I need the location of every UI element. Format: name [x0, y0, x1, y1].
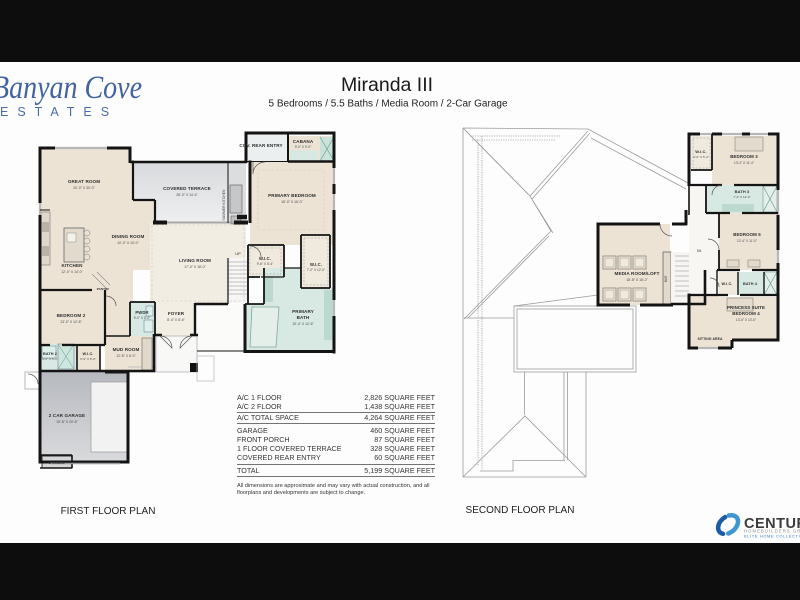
svg-text:PWDR: PWDR — [135, 310, 148, 315]
svg-text:FOYER: FOYER — [168, 311, 185, 316]
svg-text:MEDIA ROOM/LOFT: MEDIA ROOM/LOFT — [615, 271, 660, 276]
svg-text:W.I.C.: W.I.C. — [722, 282, 733, 286]
svg-text:20'-0" X 30'-0": 20'-0" X 30'-0" — [73, 186, 95, 190]
svg-text:4,264 SQUARE FEET: 4,264 SQUARE FEET — [364, 413, 435, 422]
svg-text:6'-9" X 5'-0": 6'-9" X 5'-0" — [80, 357, 96, 361]
svg-text:MUD ROOM: MUD ROOM — [113, 347, 140, 352]
svg-text:COVERED TERRACE: COVERED TERRACE — [163, 186, 211, 191]
svg-text:PANTRY: PANTRY — [97, 287, 110, 291]
svg-text:A/C 1 FLOOR: A/C 1 FLOOR — [237, 393, 282, 402]
svg-text:8'-4" X 8'-6": 8'-4" X 8'-6" — [167, 318, 185, 322]
svg-text:17'-0" X 18'-0": 17'-0" X 18'-0" — [184, 265, 206, 269]
svg-text:LIVING ROOM: LIVING ROOM — [179, 258, 211, 263]
svg-text:SECOND FLOOR PLAN: SECOND FLOOR PLAN — [466, 505, 575, 516]
svg-text:SITTING AREA: SITTING AREA — [698, 337, 723, 341]
svg-text:STORAGE: STORAGE — [49, 461, 64, 465]
svg-text:GREAT ROOM: GREAT ROOM — [68, 179, 100, 184]
svg-text:COVERED REAR ENTRY: COVERED REAR ENTRY — [237, 453, 321, 462]
svg-text:BATH 3: BATH 3 — [735, 189, 750, 194]
svg-text:10'-0" X 10'-0": 10'-0" X 10'-0" — [117, 241, 139, 245]
svg-text:A/C TOTAL SPACE: A/C TOTAL SPACE — [237, 413, 299, 422]
svg-text:W.I.C.: W.I.C. — [83, 352, 94, 356]
svg-text:W.I.C.: W.I.C. — [259, 256, 271, 261]
svg-text:PRIMARY: PRIMARY — [292, 309, 314, 314]
svg-text:1 FLOOR COVERED TERRACE: 1 FLOOR COVERED TERRACE — [237, 444, 342, 453]
svg-text:BEDROOM 5: BEDROOM 5 — [733, 232, 761, 237]
svg-text:BEDROOM 2: BEDROOM 2 — [57, 313, 86, 318]
svg-text:All dimensions are approximate: All dimensions are approximate and may v… — [237, 483, 429, 489]
svg-text:19'-8" X 20'-8": 19'-8" X 20'-8" — [56, 420, 78, 424]
svg-text:328 SQUARE FEET: 328 SQUARE FEET — [370, 444, 435, 453]
svg-text:FRONT PORCH: FRONT PORCH — [237, 435, 290, 444]
svg-text:A/C 2 FLOOR: A/C 2 FLOOR — [237, 402, 282, 411]
svg-text:BATH 2: BATH 2 — [43, 352, 57, 356]
svg-text:12'-8" X 6'-0": 12'-8" X 6'-0" — [116, 354, 136, 358]
svg-text:5'-0" X 5'-0": 5'-0" X 5'-0" — [134, 316, 151, 320]
svg-text:DINING ROOM: DINING ROOM — [112, 234, 145, 239]
svg-text:28'-0" X 14'-4": 28'-0" X 14'-4" — [176, 193, 198, 197]
svg-text:CABANA: CABANA — [293, 139, 314, 144]
svg-text:87 SQUARE FEET: 87 SQUARE FEET — [374, 435, 435, 444]
svg-text:13'-6" X 13'-0": 13'-6" X 13'-0" — [736, 318, 756, 322]
svg-text:18'-8" X 18'-2": 18'-8" X 18'-2" — [626, 278, 648, 282]
svg-text:SUMMER KITCHEN: SUMMER KITCHEN — [222, 189, 226, 220]
svg-text:2 CAR GARAGE: 2 CAR GARAGE — [49, 413, 85, 418]
svg-text:TOTAL: TOTAL — [237, 466, 260, 475]
svg-text:W.I.C.: W.I.C. — [310, 262, 322, 267]
svg-text:9'-0" X 9'-0": 9'-0" X 9'-0" — [295, 145, 312, 149]
svg-text:5 Bedrooms / 5.5 Baths / Media: 5 Bedrooms / 5.5 Baths / Media Room / 2-… — [269, 99, 508, 110]
svg-text:13'-4" X 11'-4": 13'-4" X 11'-4" — [734, 161, 754, 165]
svg-text:19'-4" X 12'-6": 19'-4" X 12'-6" — [292, 322, 314, 326]
svg-text:60 SQUARE FEET: 60 SQUARE FEET — [374, 453, 435, 462]
svg-text:COV. REAR ENTRY: COV. REAR ENTRY — [239, 143, 282, 148]
svg-text:GARAGE: GARAGE — [237, 426, 268, 435]
svg-text:BATH 4: BATH 4 — [743, 282, 758, 286]
svg-text:W.I.C.: W.I.C. — [695, 149, 707, 154]
svg-text:12'-0" X 14'-0": 12'-0" X 14'-0" — [61, 270, 83, 274]
svg-text:Banyan Cove: Banyan Cove — [0, 70, 142, 106]
svg-text:BEDROOM 3: BEDROOM 3 — [730, 154, 758, 159]
svg-text:PRIMARY BEDROOM: PRIMARY BEDROOM — [268, 193, 316, 198]
svg-text:BAR: BAR — [664, 275, 668, 282]
svg-text:7'-4" X 12'-0": 7'-4" X 12'-0" — [733, 195, 750, 199]
svg-text:1,438 SQUARE FEET: 1,438 SQUARE FEET — [364, 402, 435, 411]
svg-text:16'-0" X 16'-0": 16'-0" X 16'-0" — [281, 200, 303, 204]
svg-text:9'-6" X 5'-4": 9'-6" X 5'-4" — [257, 262, 274, 266]
svg-text:ELITE HOME COLLECTIO: ELITE HOME COLLECTIO — [744, 534, 800, 539]
svg-text:KITCHEN: KITCHEN — [61, 263, 83, 268]
svg-text:13'-0" X 12'-8": 13'-0" X 12'-8" — [60, 320, 82, 324]
svg-text:BATH: BATH — [297, 315, 310, 320]
svg-text:floorplans and developments ar: floorplans and developments are subject … — [237, 490, 366, 496]
svg-text:460 SQUARE FEET: 460 SQUARE FEET — [370, 426, 435, 435]
svg-text:5,199 SQUARE FEET: 5,199 SQUARE FEET — [364, 466, 435, 475]
svg-text:Miranda III: Miranda III — [341, 74, 433, 96]
svg-text:2,826 SQUARE FEET: 2,826 SQUARE FEET — [364, 393, 435, 402]
svg-text:BEDROOM 4: BEDROOM 4 — [732, 311, 760, 316]
svg-text:12'-4" X 11'-0": 12'-4" X 11'-0" — [737, 239, 757, 243]
svg-text:UP: UP — [235, 251, 241, 256]
svg-text:9'-2" X 5'-1": 9'-2" X 5'-1" — [42, 357, 58, 361]
svg-text:7'-2" X 12'-0": 7'-2" X 12'-0" — [307, 268, 325, 272]
svg-text:ESTATES: ESTATES — [0, 105, 118, 119]
svg-text:FIRST FLOOR PLAN: FIRST FLOOR PLAN — [61, 506, 156, 517]
svg-text:PRINCESS SUITE: PRINCESS SUITE — [727, 305, 765, 310]
svg-text:9'-0" X 5'-4": 9'-0" X 5'-4" — [693, 155, 709, 159]
svg-text:DN: DN — [697, 249, 702, 253]
